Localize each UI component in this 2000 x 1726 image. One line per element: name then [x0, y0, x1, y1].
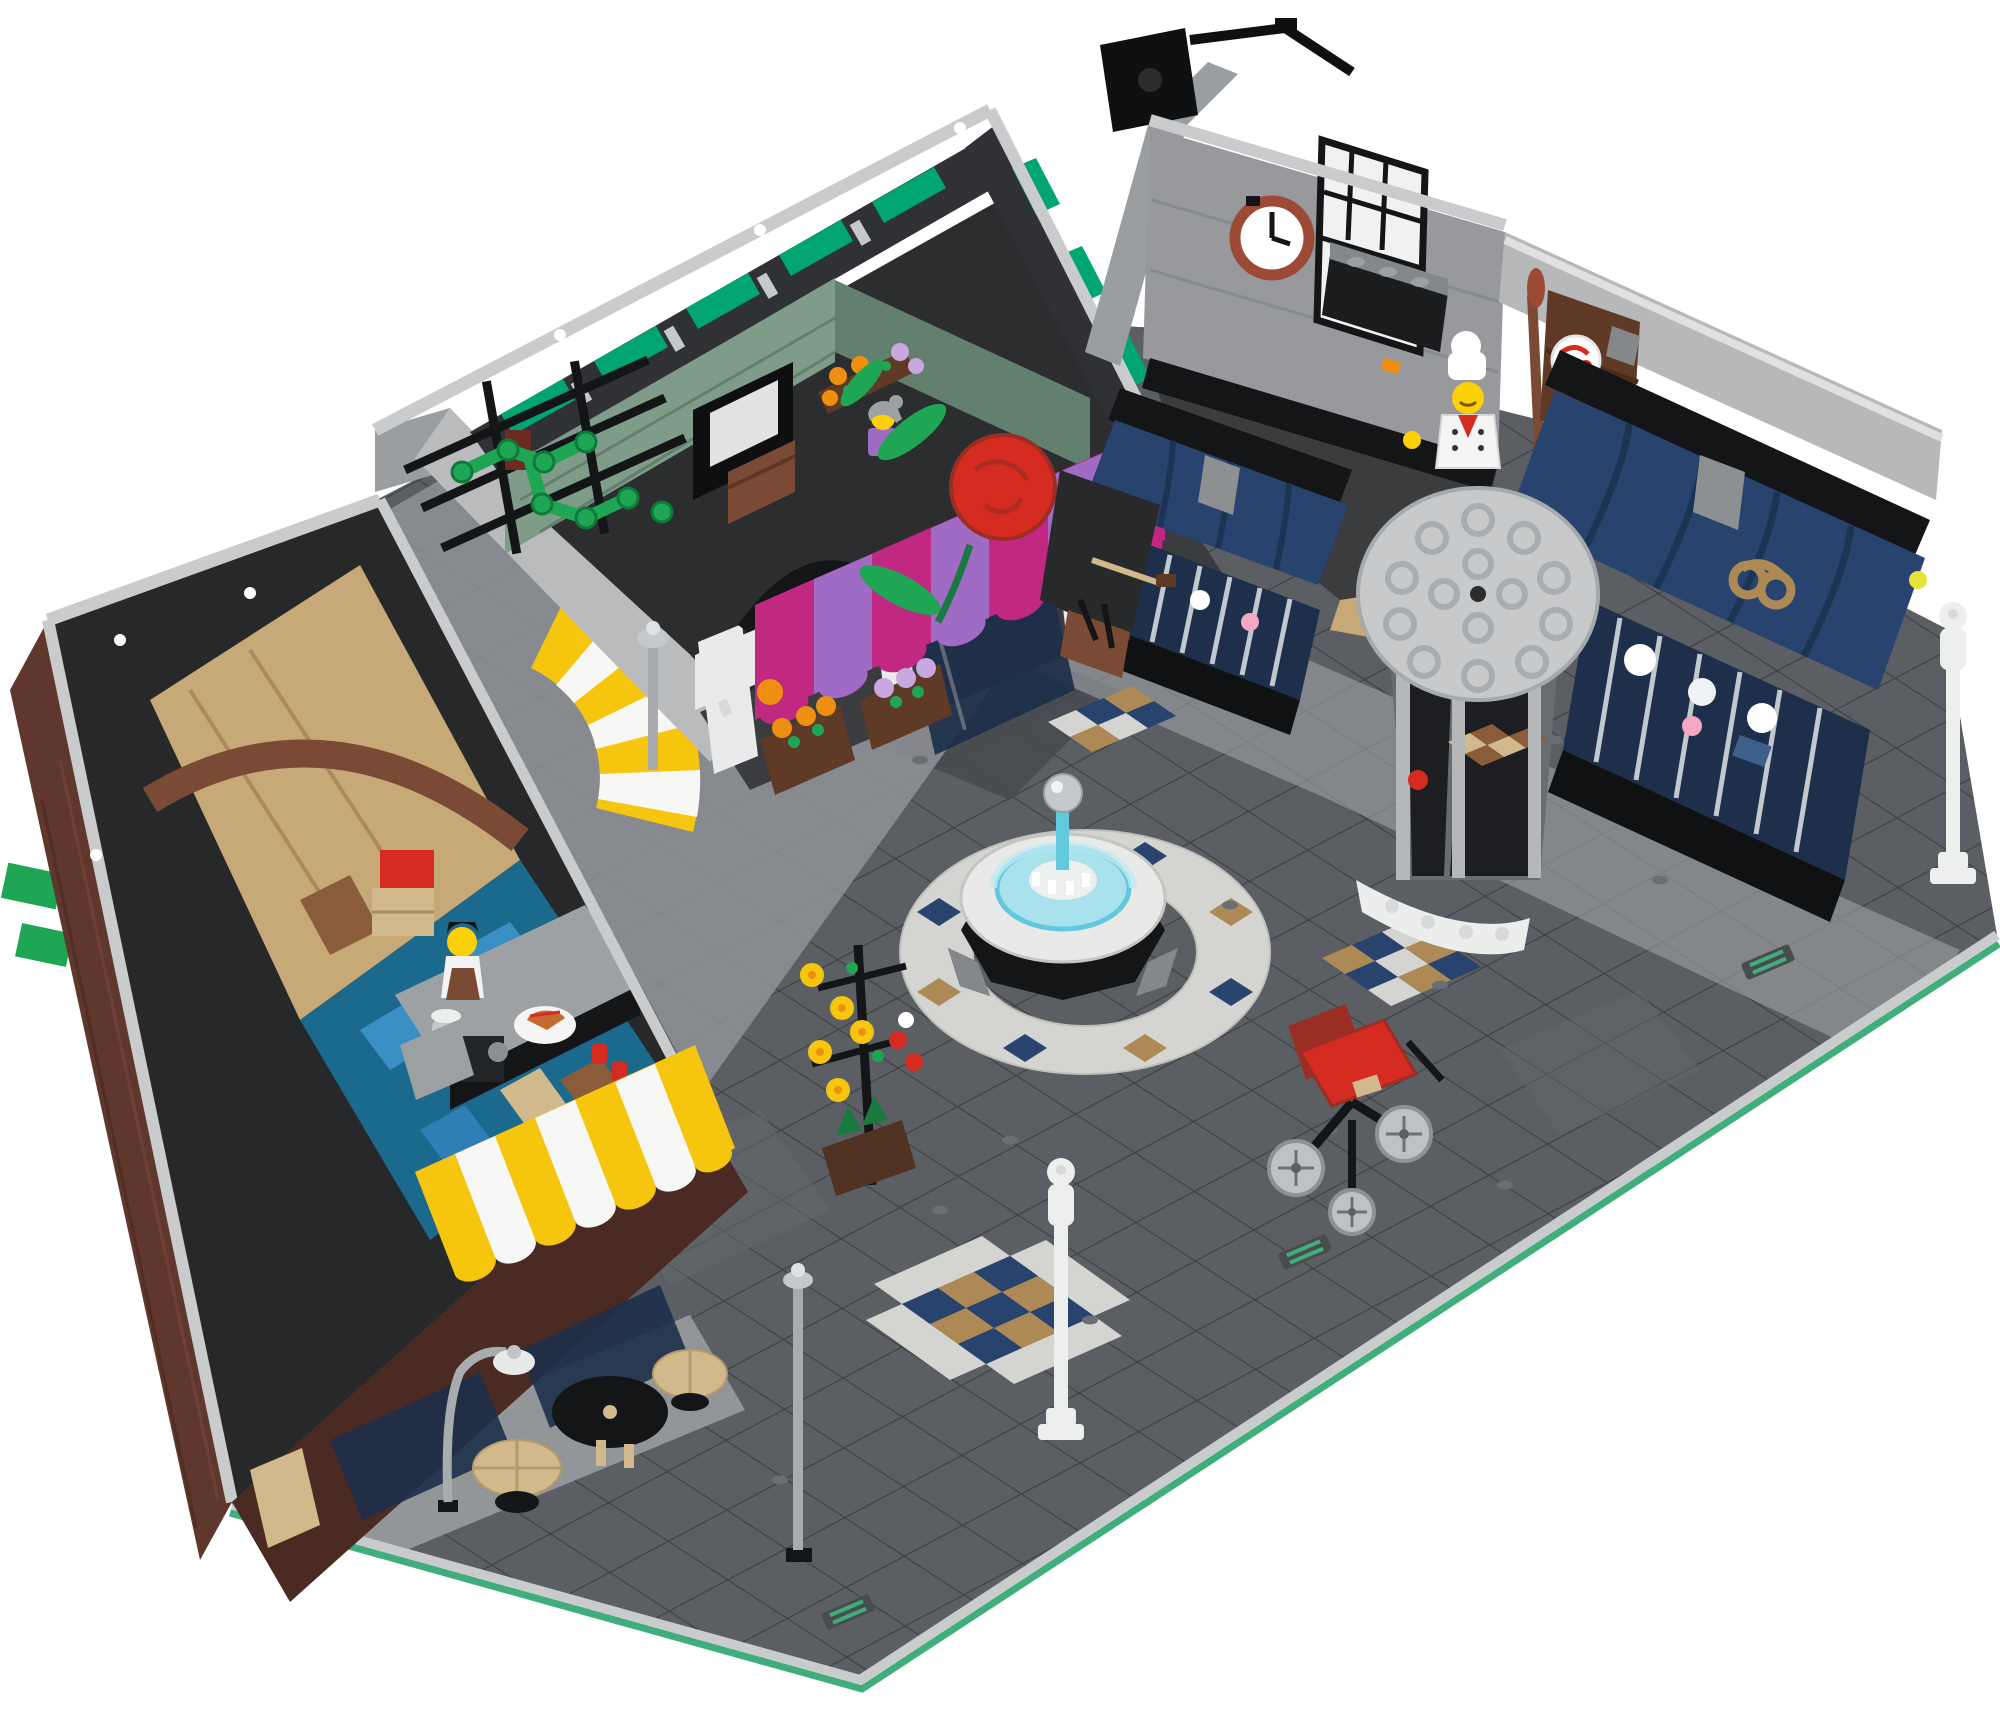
lantern	[1909, 571, 1927, 589]
scene-canvas	[0, 0, 2000, 1726]
red-tap	[1408, 770, 1428, 790]
wall-clock	[1235, 196, 1309, 275]
red-mug	[592, 1044, 607, 1064]
fountain-chrome-sphere	[1044, 774, 1082, 812]
red-cabinet	[380, 850, 434, 888]
lego-set-photo	[0, 0, 2000, 1726]
